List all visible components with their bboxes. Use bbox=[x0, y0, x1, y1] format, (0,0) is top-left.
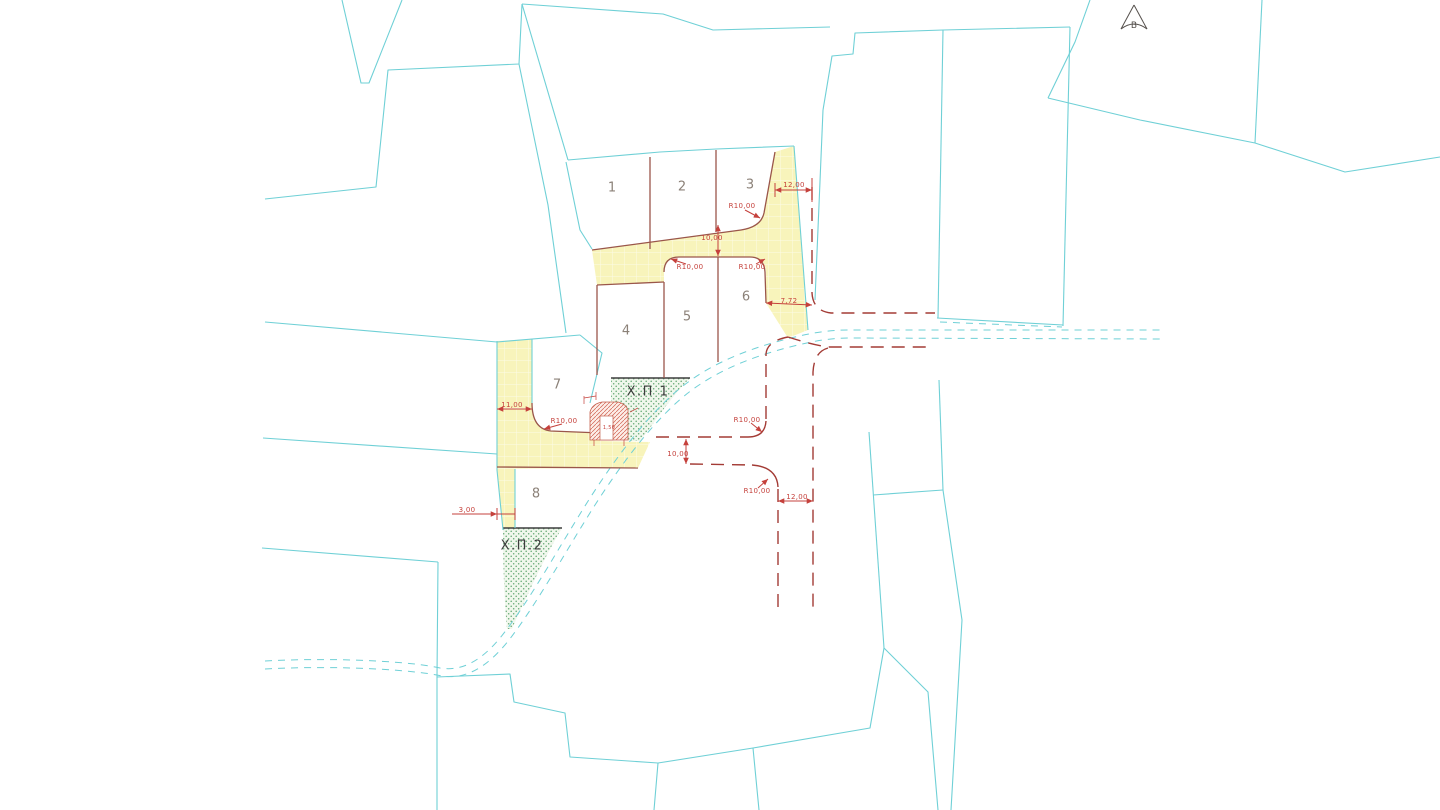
road-area-north bbox=[592, 146, 808, 338]
road-area-fills bbox=[497, 146, 808, 529]
plan-drawing: В bbox=[0, 0, 1440, 810]
stream-lines bbox=[265, 322, 1160, 677]
parcel-boundaries bbox=[262, 0, 1440, 810]
structure-opening bbox=[600, 416, 613, 440]
cadastral-plan-canvas: В 12345678Х.П 1Х.П.212,00R10,0010,00R10,… bbox=[0, 0, 1440, 810]
green-zone-xp2 bbox=[503, 528, 562, 629]
north-arrow-letter: В bbox=[1131, 21, 1137, 31]
north-arrow: В bbox=[1121, 5, 1147, 31]
